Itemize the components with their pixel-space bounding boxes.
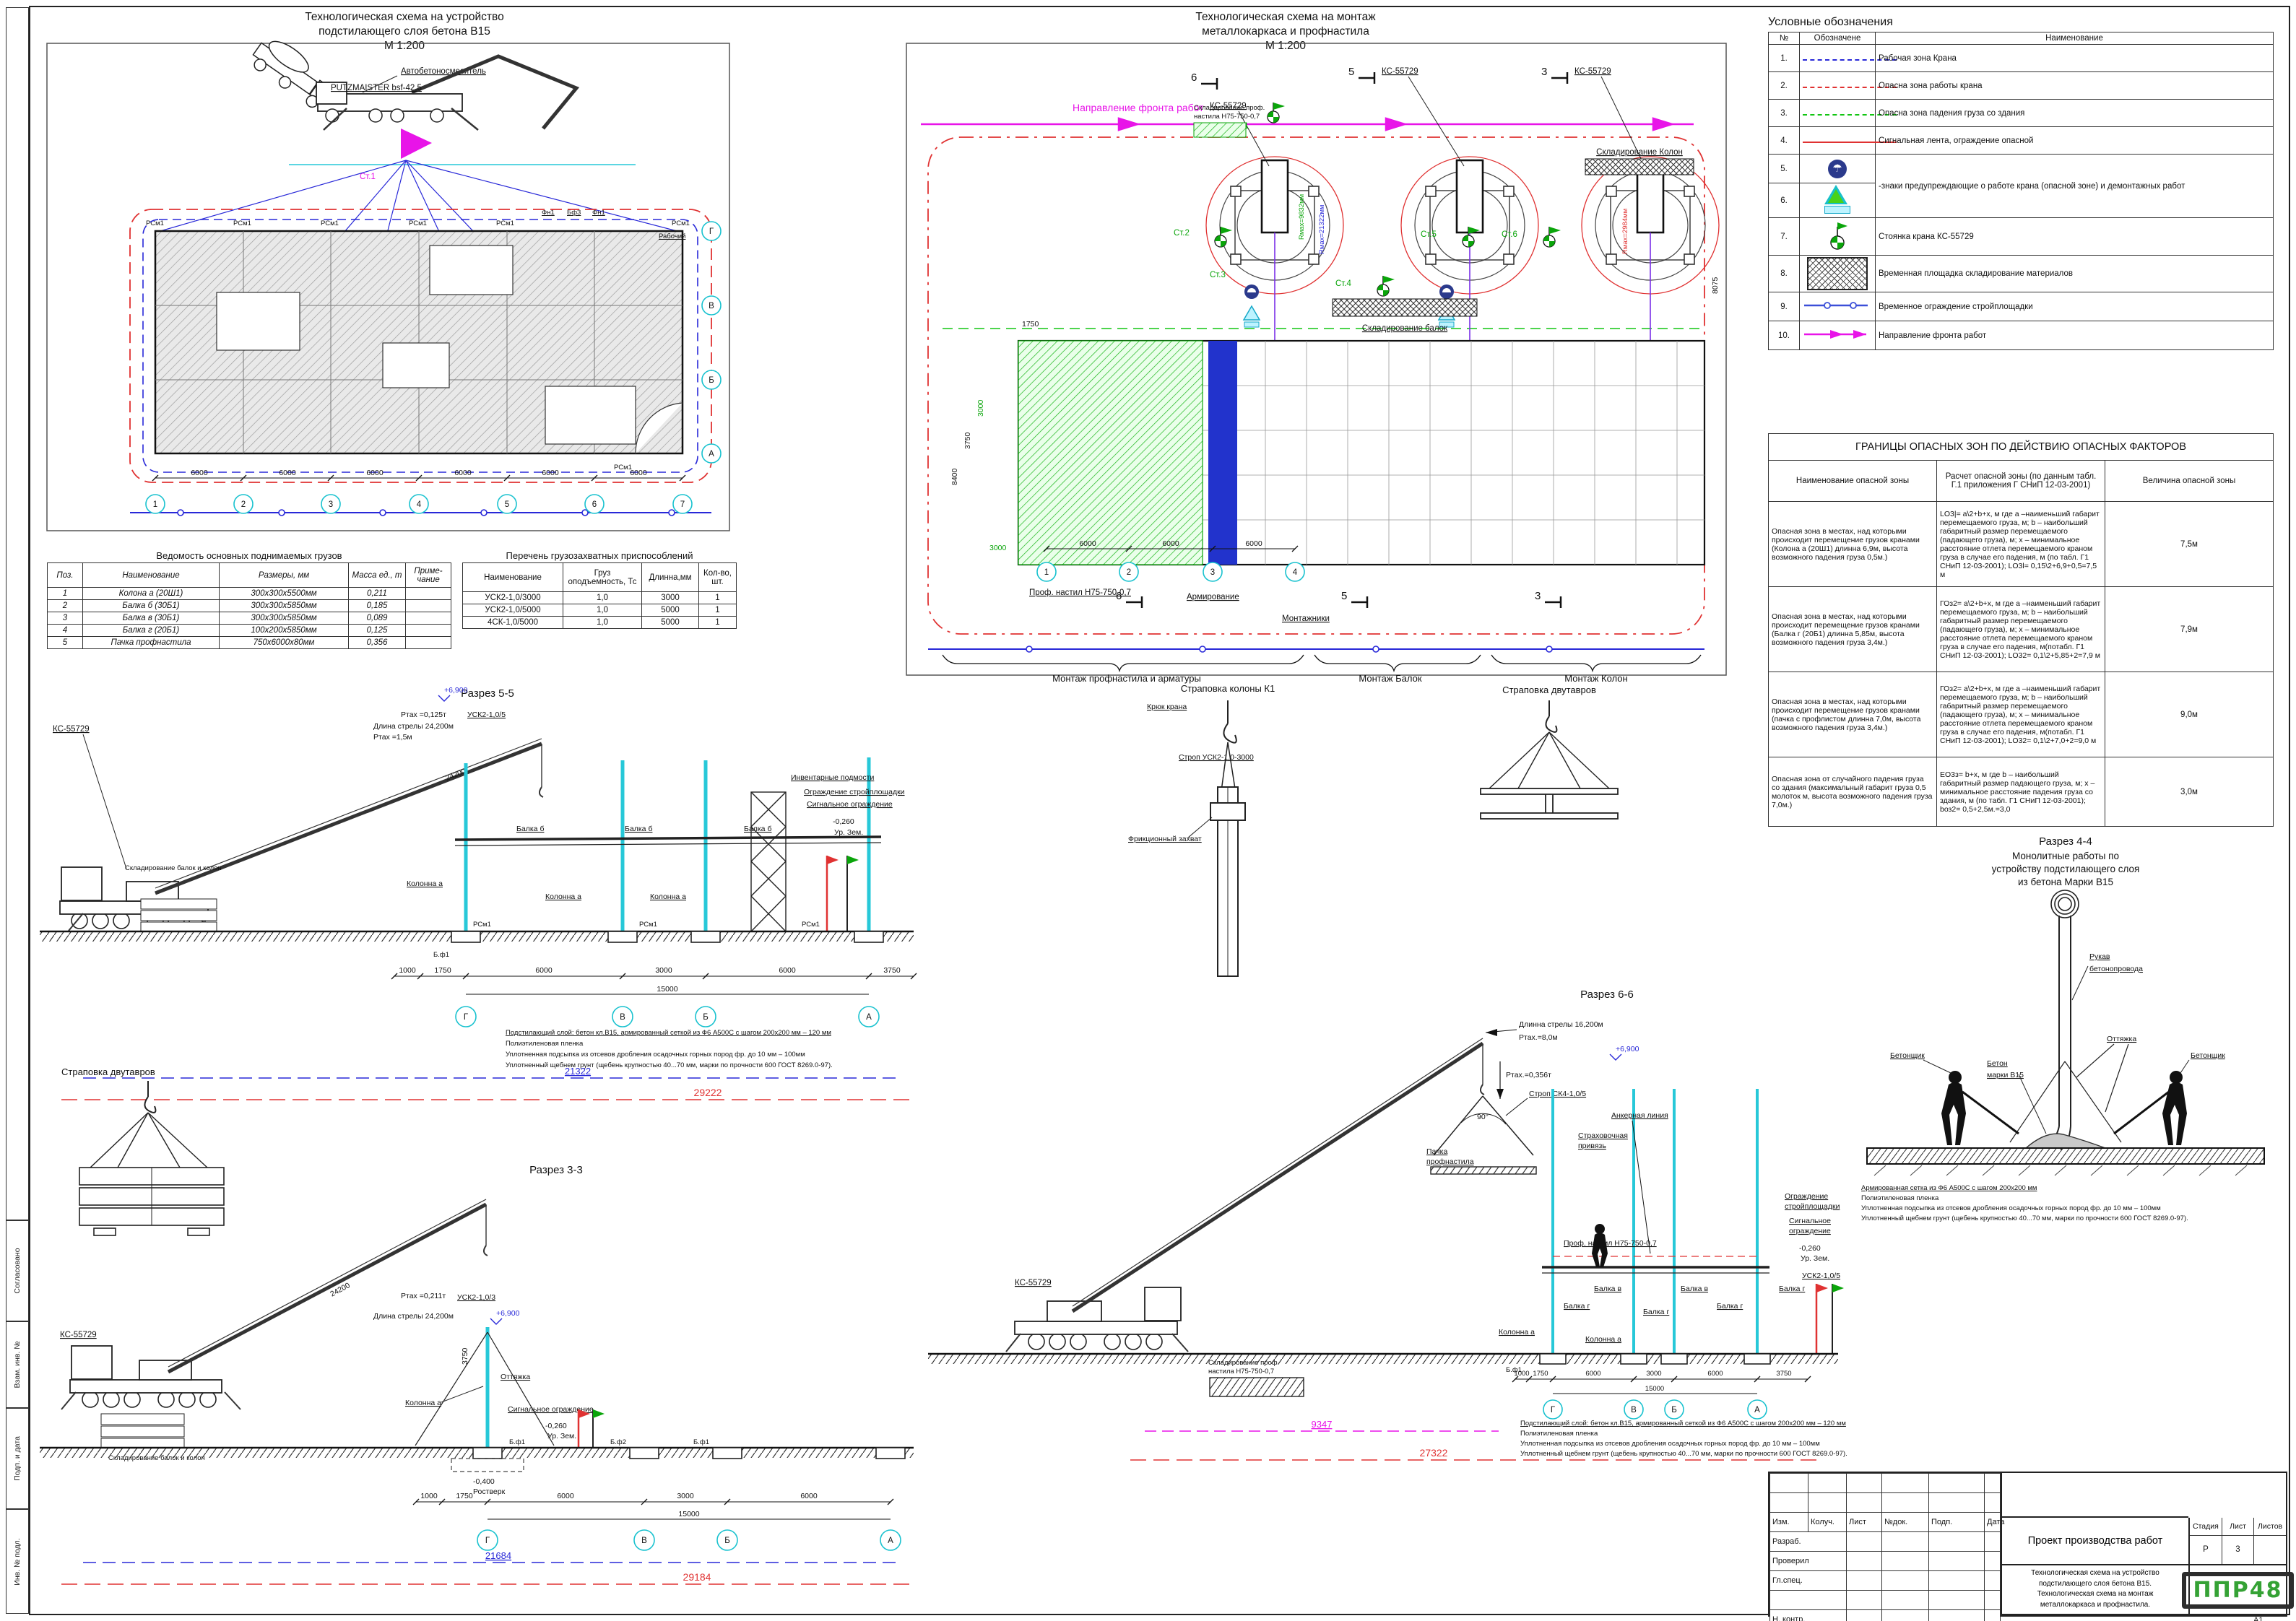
axes-33: Г В Б А xyxy=(477,1530,901,1550)
svg-text:Ур. Зем.: Ур. Зем. xyxy=(547,1432,576,1440)
svg-text:Уплотненная подсыпка из отсево: Уплотненная подсыпка из отсевов дроблени… xyxy=(1861,1204,2161,1212)
svg-text:Строп СК4-1,0/5: Строп СК4-1,0/5 xyxy=(1529,1090,1586,1098)
montazhniki-label: Монтажники xyxy=(1282,614,1330,623)
svg-text:Б.ф2: Б.ф2 xyxy=(610,1438,626,1446)
svg-text:3750: 3750 xyxy=(1776,1370,1791,1378)
section-3-3: Разрез 3-3 КС-55729 24200 Ртах =0,211т У… xyxy=(40,1119,921,1596)
crane-66-label: КС-55729 xyxy=(1015,1279,1052,1287)
logo-cell: ППР48 xyxy=(2188,1565,2286,1615)
svg-text:УСК2-1,0/5: УСК2-1,0/5 xyxy=(467,710,506,719)
plan2-drawing: Направление фронта работ 6 5 3 xyxy=(899,9,1737,684)
dim-21322: 21322 xyxy=(565,1066,591,1077)
svg-text:Б.ф1: Б.ф1 xyxy=(509,1438,525,1446)
dim-27322: 27322 xyxy=(1420,1447,1448,1459)
svg-text:6000: 6000 xyxy=(1585,1370,1600,1378)
storage-33 xyxy=(101,1414,184,1448)
table-row: 3Балка в (30Б1)300х300х5850мм0,089 xyxy=(48,612,451,625)
svg-text:РСм1: РСм1 xyxy=(146,220,164,227)
signal-fence-33 xyxy=(579,1409,605,1448)
svg-text:6: 6 xyxy=(1191,71,1197,84)
table-row: 4СК-1,0/50001,050001 xyxy=(463,617,737,629)
svg-text:Г: Г xyxy=(709,227,714,236)
svg-text:Инвентарные подмости: Инвентарные подмости xyxy=(791,773,874,782)
table-row: 1Колона а (20Ш1)300х300х5500мм0,211 xyxy=(48,588,451,600)
svg-text:90°: 90° xyxy=(1477,1113,1489,1121)
dims-55: 1000 1750 6000 3000 6000 3750 15000 xyxy=(391,966,917,994)
svg-text:Ограждение стройплощадки: Ограждение стройплощадки xyxy=(804,788,905,796)
concrete-pipe xyxy=(2048,890,2079,1150)
guy-ropes xyxy=(2010,1044,2128,1142)
svg-text:1750: 1750 xyxy=(434,966,451,975)
svg-text:Подстилающий слой: бетон кл.В1: Подстилающий слой: бетон кл.В15, армиров… xyxy=(506,1029,831,1037)
warning-plate-icon xyxy=(1824,206,1850,214)
svg-text:Б: Б xyxy=(724,1537,730,1545)
pump-label: PUTZMAISTER bsf-42,5 xyxy=(331,84,422,92)
svg-text:6000: 6000 xyxy=(366,469,384,477)
svg-text:6000: 6000 xyxy=(779,966,796,975)
svg-text:5: 5 xyxy=(1341,590,1347,602)
dim-29184: 29184 xyxy=(683,1571,711,1583)
svg-text:-0,260: -0,260 xyxy=(833,817,854,826)
svg-text:РСм1: РСм1 xyxy=(639,921,657,929)
svg-text:7: 7 xyxy=(680,500,685,509)
table-row: 4Балка г (20Б1)100х200х5850мм0,125 xyxy=(48,625,451,637)
svg-text:3750: 3750 xyxy=(883,966,901,975)
svg-text:РСм1: РСм1 xyxy=(409,220,427,227)
table-row: УСК2-1,0/50001,050001 xyxy=(463,604,737,617)
svg-text:6000: 6000 xyxy=(1079,539,1096,548)
svg-text:24200: 24200 xyxy=(444,767,467,783)
svg-text:марки В15: марки В15 xyxy=(1987,1071,2024,1079)
svg-text:Армированная сетка из Ф6 А500С: Армированная сетка из Ф6 А500С с шагом 2… xyxy=(1861,1184,2037,1192)
crane-55-label: КС-55729 xyxy=(53,725,90,734)
notes-66: Подстилающий слой: бетон кл.В15, армиров… xyxy=(1520,1420,1847,1458)
crane-side-55 xyxy=(60,739,543,931)
frame-field-inv: Инв. № подл. xyxy=(6,1509,29,1614)
building-plan xyxy=(155,231,683,453)
svg-text:А: А xyxy=(866,1013,872,1022)
svg-text:Сигнальное: Сигнальное xyxy=(1789,1217,1831,1225)
svg-text:РСм1: РСм1 xyxy=(321,220,339,227)
storage-55 xyxy=(141,899,217,931)
svg-text:РСм1: РСм1 xyxy=(233,220,251,227)
storage-columns-label: Складирование Колон xyxy=(1596,148,1683,157)
hook-3 xyxy=(144,1081,155,1113)
strop-dvut-right-title: Страповка двутавров xyxy=(1502,685,1596,695)
svg-text:6000: 6000 xyxy=(1707,1370,1723,1378)
storage-area-icon xyxy=(1807,257,1868,290)
svg-text:3000: 3000 xyxy=(677,1492,694,1500)
svg-text:Бетонщик: Бетонщик xyxy=(1890,1051,1925,1060)
section-markers-top: 6 5 3 xyxy=(1191,66,1567,90)
warning-triangle-icon xyxy=(1824,185,1847,204)
svg-text:3: 3 xyxy=(1541,66,1547,78)
svg-text:8075: 8075 xyxy=(1711,277,1720,294)
svg-text:Ст.6: Ст.6 xyxy=(1502,230,1517,239)
notes-44: Армированная сетка из Ф6 А500С с шагом 2… xyxy=(1861,1184,2188,1222)
svg-text:РСм1: РСм1 xyxy=(802,921,820,929)
svg-text:Полиэтиленовая пленка: Полиэтиленовая пленка xyxy=(1520,1430,1598,1438)
svg-text:профнастила: профнастила xyxy=(1426,1157,1474,1166)
svg-text:Полиэтиленовая пленка: Полиэтиленовая пленка xyxy=(506,1040,584,1048)
axes-66: Г В Б А xyxy=(1543,1400,1767,1419)
crane3-label: КС-55729 xyxy=(1574,67,1611,76)
legend-title: Условные обозначения xyxy=(1768,16,2274,29)
section-5-5-title: Разрез 5-5 xyxy=(461,687,514,700)
slings-title: Перечень грузозахватных приспособлений xyxy=(462,550,737,561)
storage-prof-label2: настила Н75-750-0,7 xyxy=(1194,113,1260,121)
ibeam xyxy=(1481,788,1618,819)
svg-text:РСм1: РСм1 xyxy=(496,220,514,227)
storage-columns xyxy=(1585,159,1694,175)
danger-zones-panel: ГРАНИЦЫ ОПАСНЫХ ЗОН ПО ДЕЙСТВИЮ ОПАСНЫХ … xyxy=(1768,433,2274,827)
svg-text:В: В xyxy=(641,1537,647,1545)
drawing-name: Технологическая схема на устройство подс… xyxy=(2001,1565,2188,1615)
svg-text:Балка в: Балка в xyxy=(1681,1285,1708,1293)
svg-text:Б.ф1: Б.ф1 xyxy=(433,951,449,959)
fence-icon xyxy=(1803,300,1869,310)
svg-text:Подстилающий слой: бетон кл.В1: Подстилающий слой: бетон кл.В15, армиров… xyxy=(1520,1420,1846,1427)
stand-1-label: Ст.1 xyxy=(360,173,376,181)
svg-text:Ртах =0,211т: Ртах =0,211т xyxy=(401,1292,446,1300)
dims-66: 1000 1750 6000 3000 6000 3750 15000 xyxy=(1512,1370,1811,1394)
svg-text:6000: 6000 xyxy=(279,469,296,477)
crane-plan-3 xyxy=(1582,157,1719,341)
section-4-4: Разрез 4-4 Монолитные работы по устройст… xyxy=(1845,823,2286,1235)
storage-prof-label1: Складирование проф. xyxy=(1194,104,1265,112)
svg-text:Колонна а: Колонна а xyxy=(650,892,686,901)
legend-panel: Условные обозначения № Обозначене Наимен… xyxy=(1768,16,2274,350)
building-frame-55 xyxy=(455,757,881,931)
svg-text:Оттяжка: Оттяжка xyxy=(501,1373,530,1381)
armir-label: Армирование xyxy=(1187,593,1239,601)
svg-text:Ур. Зем.: Ур. Зем. xyxy=(834,828,863,837)
svg-text:1000: 1000 xyxy=(399,966,416,975)
front-direction-label: Направление фронта работ xyxy=(1073,102,1204,113)
svg-text:РСм1: РСм1 xyxy=(473,921,491,929)
title-block: Изм.Колуч. Лист№док. Подп.Дата Разраб. П… xyxy=(1768,1472,2287,1617)
frame-field-vzam: Взам. инв. № xyxy=(6,1321,29,1408)
svg-text:Колонна а: Колонна а xyxy=(1585,1335,1621,1344)
svg-text:В: В xyxy=(1631,1406,1637,1414)
legend-table: № Обозначене Наименование 1.Рабочая зона… xyxy=(1768,32,2274,350)
svg-text:стройплощадки: стройплощадки xyxy=(1785,1202,1840,1211)
loads-table: Поз. Наименование Размеры, мм Масса ед.,… xyxy=(47,562,451,649)
svg-text:Г: Г xyxy=(1551,1406,1556,1414)
dim-9347: 9347 xyxy=(1312,1419,1333,1430)
front-direction-icon xyxy=(1803,329,1869,340)
stage-sheet-cells: Стадия Лист Листов Р 3 xyxy=(2188,1518,2286,1565)
section-6-6-title: Разрез 6-6 xyxy=(1580,988,1634,1001)
svg-text:Б.ф1: Б.ф1 xyxy=(693,1438,709,1446)
svg-text:4: 4 xyxy=(417,500,422,509)
svg-text:3000: 3000 xyxy=(1646,1370,1661,1378)
site-fence-2 xyxy=(928,646,1704,652)
loads-title: Ведомость основных поднимаемых грузов xyxy=(47,550,451,561)
strop-dvut-left-title: Страповка двутавров xyxy=(61,1066,155,1077)
dim-29222: 29222 xyxy=(694,1087,722,1098)
svg-text:УСК2-1,0/5: УСК2-1,0/5 xyxy=(1802,1272,1840,1280)
crane2-label: КС-55729 xyxy=(1382,67,1418,76)
svg-text:Фрикционный захват: Фрикционный захват xyxy=(1128,835,1202,843)
notes-55: Подстилающий слой: бетон кл.В15, армиров… xyxy=(506,1029,833,1069)
svg-text:Балка г: Балка г xyxy=(1779,1285,1805,1293)
frame-left-empty xyxy=(6,7,29,1220)
svg-text:ограждение: ограждение xyxy=(1789,1227,1831,1235)
svg-text:Б: Б xyxy=(703,1013,709,1022)
svg-text:Уплотненная подсыпка из отсево: Уплотненная подсыпка из отсевов дроблени… xyxy=(506,1051,805,1059)
crane-side-33 xyxy=(61,1199,488,1409)
front-direction-arrows xyxy=(921,118,1694,130)
svg-text:+6,900: +6,900 xyxy=(444,686,468,695)
strop-k1-title: Страповка колоны К1 xyxy=(1181,683,1275,694)
table-row: 2Балка б (30Б1)300х300х5850мм0,185 xyxy=(48,600,451,612)
ppr48-logo: ППР48 xyxy=(2182,1572,2295,1609)
crane-33-label: КС-55729 xyxy=(60,1331,97,1339)
svg-text:Длина стрелы 24,200м: Длина стрелы 24,200м xyxy=(373,722,454,731)
svg-text:Балка г: Балка г xyxy=(1717,1302,1743,1311)
hook-2 xyxy=(1546,700,1556,732)
plan1-drawing: Автобетоносмеситель PUTZMAISTER bsf-42,5… xyxy=(36,7,751,545)
signal-fence-55 xyxy=(827,856,859,931)
svg-text:Ст.5: Ст.5 xyxy=(1421,230,1437,239)
doc-number-cell xyxy=(2001,1473,2188,1518)
plan1-dims: 6000 6000 6000 6000 6000 6000 xyxy=(152,469,685,481)
svg-text:Ртах.=8,0м: Ртах.=8,0м xyxy=(1519,1033,1558,1042)
svg-text:3750: 3750 xyxy=(963,432,972,449)
svg-text:Г: Г xyxy=(485,1537,490,1545)
slab-44 xyxy=(1867,1148,2264,1164)
svg-text:Оттяжка: Оттяжка xyxy=(2107,1035,2136,1043)
svg-text:Уплотненный щебнем грунт (щебе: Уплотненный щебнем грунт (щебень крупнос… xyxy=(506,1061,833,1069)
crane-stand-icon xyxy=(1823,220,1852,251)
title-block-left: Изм.Колуч. Лист№док. Подп.Дата Разраб. П… xyxy=(1769,1473,2001,1621)
svg-text:Строп УСК2-1,0-3000: Строп УСК2-1,0-3000 xyxy=(1179,753,1254,762)
svg-text:Балка г: Балка г xyxy=(1643,1308,1669,1316)
axes-55: Г В Б А xyxy=(456,1007,879,1027)
section-3-3-title: Разрез 3-3 xyxy=(529,1164,583,1176)
svg-text:6000: 6000 xyxy=(1162,539,1179,548)
svg-text:3: 3 xyxy=(329,500,333,509)
svg-text:привязь: привязь xyxy=(1578,1142,1606,1150)
load-slings-66 xyxy=(1434,1096,1533,1155)
svg-text:+6,900: +6,900 xyxy=(496,1309,520,1318)
svg-text:6: 6 xyxy=(592,500,597,509)
svg-text:Проф. настил Н75-750-0,7: Проф. настил Н75-750-0,7 xyxy=(1564,1239,1657,1248)
svg-text:Сигнальное ограждение: Сигнальное ограждение xyxy=(807,800,893,809)
strop-dvut-right: Страповка двутавров xyxy=(1452,679,1647,845)
svg-text:8400: 8400 xyxy=(950,468,959,485)
format-label: А1 xyxy=(2253,1616,2263,1621)
section-6-6: Разрез 6-6 КС-55729 Длинна стрелы 16,200… xyxy=(928,975,1845,1473)
svg-text:Уплотненный щебнем грунт (щебе: Уплотненный щебнем грунт (щебень крупнос… xyxy=(1520,1450,1847,1458)
crane-side-66 xyxy=(1006,1038,1484,1352)
svg-text:А: А xyxy=(709,450,714,459)
svg-text:Колонна а: Колонна а xyxy=(407,879,443,888)
concrete-mound xyxy=(2026,1134,2105,1148)
svg-text:Бетон: Бетон xyxy=(1987,1059,2008,1068)
svg-text:Ст.2: Ст.2 xyxy=(1174,229,1190,238)
svg-text:Б: Б xyxy=(1671,1406,1677,1414)
svg-text:5: 5 xyxy=(1348,66,1354,78)
svg-text:6: 6 xyxy=(1116,590,1122,602)
svg-text:Балка б: Балка б xyxy=(744,825,771,833)
svg-text:настила Н75-750-0,7: настила Н75-750-0,7 xyxy=(1208,1368,1274,1376)
frame-field-podp: Подп. и дата xyxy=(6,1408,29,1509)
svg-text:3000: 3000 xyxy=(976,399,985,417)
worker-right xyxy=(2114,1071,2187,1145)
svg-text:Колонна а: Колонна а xyxy=(1499,1328,1535,1337)
svg-text:1750: 1750 xyxy=(456,1492,473,1500)
svg-text:В: В xyxy=(620,1013,625,1022)
rostverk xyxy=(451,1459,524,1472)
svg-text:РСм1: РСм1 xyxy=(614,464,632,471)
loads-panel: Ведомость основных поднимаемых грузов По… xyxy=(47,550,451,649)
storage-66 xyxy=(1210,1378,1304,1396)
worker-label: Рабочий xyxy=(659,232,685,240)
svg-text:3: 3 xyxy=(1535,590,1541,602)
svg-text:Полиэтиленовая пленка: Полиэтиленовая пленка xyxy=(1861,1194,1939,1202)
svg-text:6000: 6000 xyxy=(454,469,472,477)
scaffold xyxy=(751,792,786,931)
svg-text:Балка в: Балка в xyxy=(1594,1285,1621,1293)
section-markers-bottom: 6 5 3 xyxy=(1116,590,1561,608)
svg-text:Ур. Зем.: Ур. Зем. xyxy=(1801,1254,1829,1263)
svg-text:Б: Б xyxy=(709,376,714,385)
svg-text:УСК2-1,0/3: УСК2-1,0/3 xyxy=(457,1293,495,1302)
svg-text:2: 2 xyxy=(1127,568,1131,577)
svg-text:Ртах.=0,356т: Ртах.=0,356т xyxy=(1506,1071,1551,1079)
svg-text:Крюк крана: Крюк крана xyxy=(1147,703,1187,711)
svg-text:Колонна а: Колонна а xyxy=(405,1399,441,1407)
svg-text:6000: 6000 xyxy=(542,469,559,477)
guys-33 xyxy=(415,1332,554,1446)
stage-braces xyxy=(943,655,1701,671)
svg-text:Рукав: Рукав xyxy=(2089,952,2110,961)
svg-text:6000: 6000 xyxy=(557,1492,574,1500)
signal-fence-66 xyxy=(1816,1284,1844,1354)
svg-text:Балка б: Балка б xyxy=(516,825,544,833)
svg-text:Ртах =1,5м: Ртах =1,5м xyxy=(373,733,412,742)
svg-text:Ст.3: Ст.3 xyxy=(1210,271,1226,279)
svg-text:Колонна а: Колонна а xyxy=(545,892,581,901)
radius-blue: Rмах=21322мм xyxy=(1318,205,1326,254)
svg-text:бетонопровода: бетонопровода xyxy=(2089,965,2143,973)
svg-text:3000: 3000 xyxy=(655,966,672,975)
svg-text:Длина стрелы 24,200м: Длина стрелы 24,200м xyxy=(373,1312,454,1321)
worker-66 xyxy=(1592,1224,1608,1267)
svg-text:15000: 15000 xyxy=(657,985,677,994)
slings-table: Наименование Груз оподъемность, Тс Длинн… xyxy=(462,562,737,629)
radius-red: Rмах=2984мм xyxy=(1621,209,1629,254)
crane-work-sign-icon: ☂ xyxy=(1828,160,1847,178)
svg-text:В: В xyxy=(709,302,714,310)
svg-text:1: 1 xyxy=(1044,568,1049,577)
svg-text:6000: 6000 xyxy=(1245,539,1262,548)
svg-text:6000: 6000 xyxy=(800,1492,818,1500)
svg-text:-0,260: -0,260 xyxy=(1799,1244,1821,1253)
svg-text:1000: 1000 xyxy=(1514,1370,1529,1378)
svg-text:1750: 1750 xyxy=(1533,1370,1548,1378)
svg-text:из бетона Марки В15: из бетона Марки В15 xyxy=(2018,877,2113,887)
svg-text:3750: 3750 xyxy=(461,1347,469,1365)
svg-text:3: 3 xyxy=(1210,568,1215,577)
svg-text:2: 2 xyxy=(241,500,246,509)
svg-text:15000: 15000 xyxy=(678,1510,699,1518)
svg-text:6000: 6000 xyxy=(630,469,647,477)
table-row: УСК2-1,0/30001,030001 xyxy=(463,592,737,604)
svg-text:А: А xyxy=(888,1537,893,1545)
svg-text:Уплотненная подсыпка из отсево: Уплотненная подсыпка из отсевов дроблени… xyxy=(1520,1440,1820,1448)
svg-text:6000: 6000 xyxy=(191,469,208,477)
svg-text:4: 4 xyxy=(1293,568,1298,577)
svg-text:-0,260: -0,260 xyxy=(545,1422,567,1430)
svg-text:Уплотненный щебнем грунт (щебе: Уплотненный щебнем грунт (щебень крупнос… xyxy=(1861,1214,2188,1222)
svg-text:5: 5 xyxy=(505,500,509,509)
deck-plan xyxy=(1018,341,1704,565)
danger-zones-table: ГРАНИЦЫ ОПАСНЫХ ЗОН ПО ДЕЙСТВИЮ ОПАСНЫХ … xyxy=(1768,433,2274,827)
svg-text:Ртах =0,125т: Ртах =0,125т xyxy=(401,710,446,719)
pump-sector xyxy=(401,129,432,159)
svg-text:+6,900: +6,900 xyxy=(1616,1045,1639,1053)
frame-field-soglasovano: Согласовано xyxy=(6,1220,29,1321)
svg-text:1000: 1000 xyxy=(420,1492,438,1500)
storage-prof xyxy=(1194,123,1246,137)
worker-left xyxy=(1941,1071,2019,1145)
current-bay xyxy=(1208,341,1237,565)
prof-pack xyxy=(1431,1167,1536,1174)
storage-beams xyxy=(1333,299,1477,316)
svg-text:-0,400: -0,400 xyxy=(473,1477,495,1486)
project-name: Проект производства работ xyxy=(2001,1518,2188,1565)
svg-text:Балка г: Балка г xyxy=(1564,1302,1590,1311)
radius-green: Rмах=9832мм xyxy=(1298,194,1306,240)
drawing-sheet: Согласовано Взам. инв. № Подп. и дата Ин… xyxy=(0,0,2296,1621)
slings-2 xyxy=(1489,732,1609,788)
svg-text:Анкерная линия: Анкерная линия xyxy=(1611,1111,1668,1120)
svg-text:Балка б: Балка б xyxy=(625,825,652,833)
svg-text:Ст.4: Ст.4 xyxy=(1335,279,1351,288)
table-row: 5Пачка профнастила750х6000х80мм0,356 xyxy=(48,637,451,649)
slings-panel: Перечень грузозахватных приспособлений Н… xyxy=(462,550,737,629)
column-k1 xyxy=(1210,787,1245,976)
svg-text:Длинна стрелы 16,200м: Длинна стрелы 16,200м xyxy=(1519,1020,1603,1029)
svg-text:Складирование балок и колон: Складирование балок и колон xyxy=(125,864,222,872)
svg-text:Страховочная: Страховочная xyxy=(1578,1131,1628,1140)
svg-text:Пачка: Пачка xyxy=(1426,1147,1447,1156)
dim-21684: 21684 xyxy=(485,1550,511,1561)
svg-text:Разрез 4-4: Разрез 4-4 xyxy=(2039,835,2092,848)
svg-text:Монолитные работы по: Монолитные работы по xyxy=(2012,851,2119,861)
storage-beams-label: Складирование балок xyxy=(1362,324,1448,333)
ground-66 xyxy=(928,1354,1838,1364)
svg-text:6000: 6000 xyxy=(535,966,553,975)
svg-text:15000: 15000 xyxy=(1645,1385,1664,1393)
svg-text:устройству подстилающего слоя: устройству подстилающего слоя xyxy=(1992,864,2140,874)
svg-text:Г: Г xyxy=(464,1013,469,1022)
svg-text:Бетонщик: Бетонщик xyxy=(2191,1051,2225,1060)
svg-text:А: А xyxy=(1754,1406,1760,1414)
ground-ticks-44 xyxy=(1874,1165,2247,1175)
svg-text:Ростверк: Ростверк xyxy=(473,1487,506,1496)
stage2-label: Монтаж Балок xyxy=(1359,673,1421,684)
svg-text:3000: 3000 xyxy=(989,544,1007,552)
svg-text:1: 1 xyxy=(153,500,157,509)
svg-text:Ограждение: Ограждение xyxy=(1785,1192,1828,1201)
strop-k1: Страповка колоны К1 Крюк крана Строп УСК… xyxy=(1119,679,1336,982)
svg-text:1750: 1750 xyxy=(1022,320,1039,329)
crane-hook-icon xyxy=(1223,700,1236,743)
